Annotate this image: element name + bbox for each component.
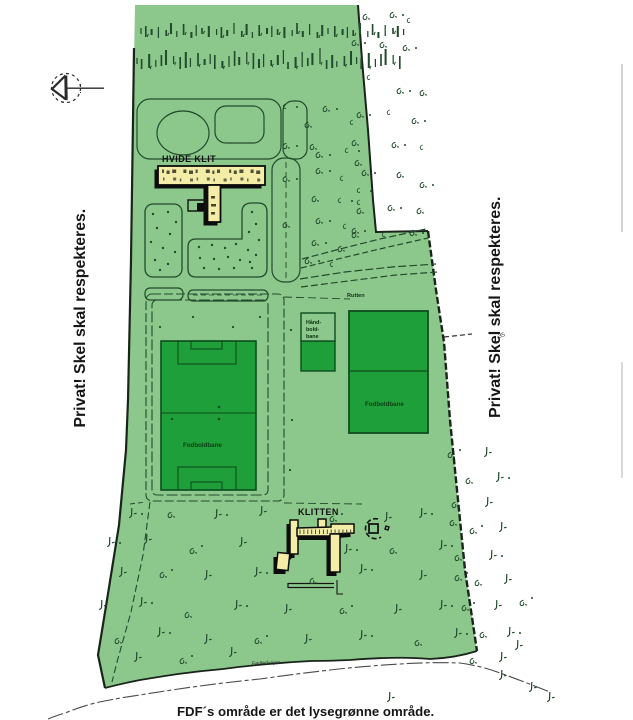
- svg-text:Fodboldbane: Fodboldbane: [183, 442, 222, 449]
- svg-text:Privat! Skel skal respekteres.: Privat! Skel skal respekteres.: [487, 197, 504, 418]
- svg-text:HVIDE KLIT: HVIDE KLIT: [162, 154, 216, 164]
- svg-text:bold-: bold-: [306, 327, 319, 333]
- svg-text:Privat! Skel skal respekteres.: Privat! Skel skal respekteres.: [72, 209, 89, 428]
- svg-text:bane: bane: [306, 334, 319, 340]
- svg-text:Fælledvejen: Fælledvejen: [252, 660, 281, 667]
- svg-text:FDF´s område er det lysegrønne: FDF´s område er det lysegrønne område.: [177, 704, 434, 719]
- svg-text:Rutten: Rutten: [347, 293, 365, 299]
- svg-text:KLITTEN: KLITTEN: [298, 507, 339, 517]
- svg-text:Fodboldbane: Fodboldbane: [365, 401, 404, 408]
- svg-text:Hånd-: Hånd-: [306, 319, 321, 326]
